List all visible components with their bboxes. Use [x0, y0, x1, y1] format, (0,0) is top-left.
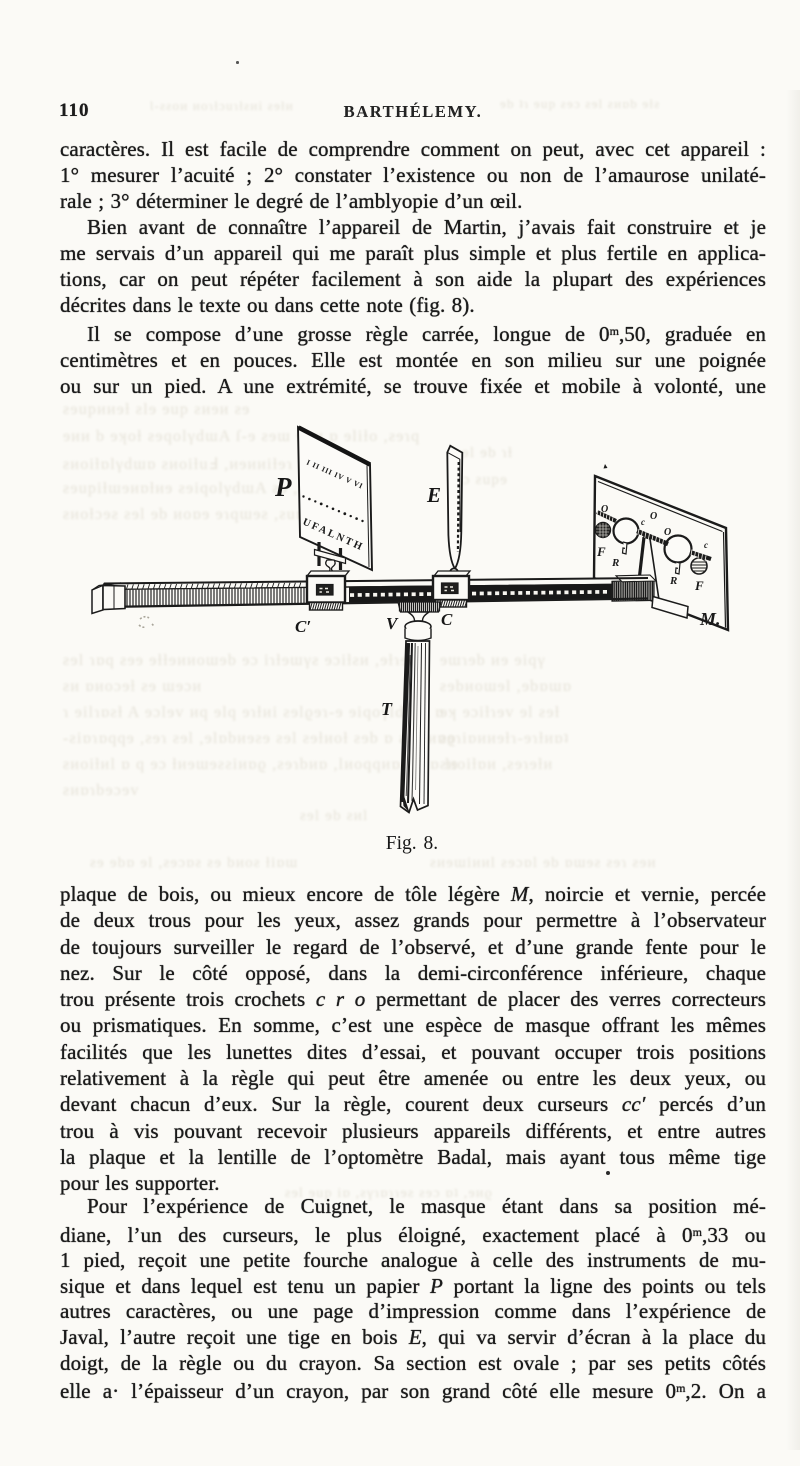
svg-text:P: P — [274, 472, 292, 502]
svg-text:F: F — [694, 578, 704, 593]
svg-text:R: R — [669, 575, 677, 587]
svg-text:O: O — [664, 527, 671, 538]
svg-text:F: F — [596, 544, 606, 559]
svg-text:O: O — [601, 504, 608, 515]
svg-text:Fig. 8.: Fig. 8. — [386, 833, 438, 854]
svg-text:R: R — [611, 557, 619, 569]
svg-text:E: E — [426, 483, 441, 507]
svg-text:T: T — [381, 699, 393, 719]
svg-text:c: c — [641, 517, 645, 527]
svg-text:O: O — [650, 511, 657, 522]
svg-text:C′: C′ — [295, 617, 311, 636]
svg-text:V: V — [386, 614, 399, 633]
svg-text:c: c — [704, 540, 708, 550]
svg-text:M.: M. — [699, 609, 721, 629]
svg-text:C: C — [441, 610, 453, 629]
